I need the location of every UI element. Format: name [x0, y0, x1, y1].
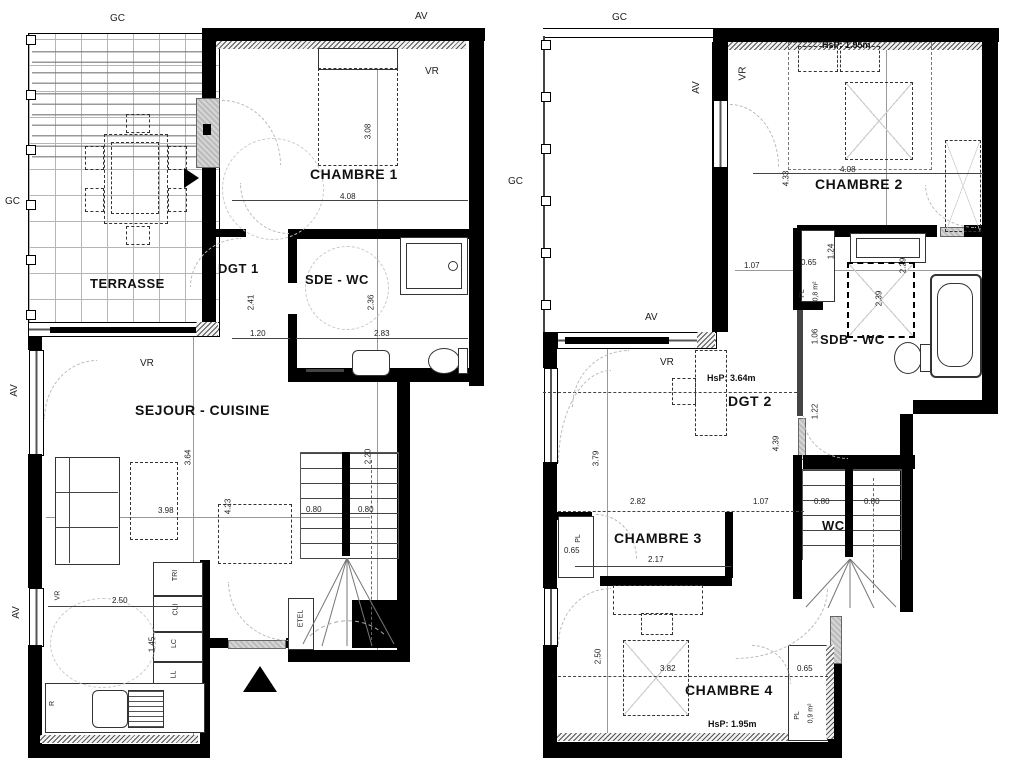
wall [712, 42, 728, 332]
dim-sejour-depth: 4.23 [223, 499, 232, 515]
kitchen-island [130, 462, 178, 540]
sofa-line [69, 457, 70, 563]
wall [793, 455, 802, 599]
dim-sdb-e: 1.06 [810, 329, 819, 345]
dim-stair-height: 2.20 [363, 449, 372, 465]
pl-closet-c4 [788, 645, 828, 741]
dim-stair-right: 0.80 [864, 497, 880, 506]
wall-insulation [40, 735, 198, 743]
railing-post [541, 196, 551, 206]
railing-post [26, 35, 36, 45]
wall [216, 229, 246, 237]
annotation-vr-kitchen: VR [54, 591, 61, 601]
kitchen-label-r: R [49, 701, 56, 706]
wall-insulation [196, 322, 218, 336]
dim-c3-width: 2.82 [630, 497, 646, 506]
room-label-chambre3: CHAMBRE 3 [614, 530, 702, 546]
annotation-av-top: AV [415, 11, 428, 22]
terrace-chair [168, 146, 187, 170]
room-label-wc: WC [822, 518, 845, 533]
hsp-label-c2: HsP: 1.95m [822, 40, 871, 50]
dim-dgt2-height: 4.39 [771, 436, 780, 452]
sofa [55, 457, 120, 565]
annotation-gc-top: GC [612, 12, 627, 23]
dim-sdb-c: 2.39 [874, 291, 883, 307]
dim-stair-left: 0.80 [814, 497, 830, 506]
roller-shutter-box [565, 337, 669, 344]
washbasin-sdb-inner [856, 238, 920, 258]
desk [613, 585, 703, 615]
wall [210, 638, 228, 648]
railing-post [26, 255, 36, 265]
dim-stair-right: 0.80 [358, 505, 374, 514]
sofa-line [55, 527, 118, 528]
shower-drain [448, 261, 458, 271]
door-handle [203, 124, 211, 135]
roller-shutter-box [50, 327, 200, 333]
wardrobe-dgt2 [695, 350, 727, 436]
kitchen-label-cui: CUI [173, 603, 180, 615]
dim-c2-height: 4.33 [781, 171, 790, 187]
void-left-edge [543, 36, 545, 332]
annotation-av-left-lower: AV [11, 606, 22, 619]
dim-c3-b: 1.07 [753, 497, 769, 506]
dim-sdb-f: 1.22 [810, 404, 819, 420]
wall [28, 336, 42, 350]
wall [543, 645, 557, 758]
wall [803, 455, 915, 469]
wall [202, 41, 216, 333]
terrace-chair [126, 114, 150, 133]
dim-sde-height: 2.36 [366, 295, 375, 311]
void-area [543, 28, 719, 38]
annotation-vr-dgt2: VR [660, 357, 674, 368]
annotation-etel: ETEL [297, 610, 304, 628]
railing-post [26, 145, 36, 155]
toilet-tank [458, 348, 468, 374]
annotation-vr-sejour: VR [140, 358, 154, 369]
plan-lower-level: TERRASSE CHAMBRE 1 DGT 1 SDE - WC SEJOUR… [0, 0, 512, 767]
annotation-gc-left: GC [508, 176, 523, 187]
dim-kitchen-width: 2.50 [112, 596, 128, 605]
kitchen-unit-lc [153, 632, 203, 662]
room-label-chambre1: CHAMBRE 1 [310, 166, 398, 182]
annotation-av-dgt2: AV [645, 312, 658, 323]
wall-thin [797, 310, 803, 416]
wall [469, 41, 484, 386]
window [544, 588, 558, 647]
stair-direction-line [371, 460, 372, 640]
dim-c2-width: 4.08 [840, 165, 856, 174]
wall-insulation [697, 332, 715, 348]
dim-line [296, 338, 468, 339]
floorplan-sheet: { "colors": {"ink":"#000000","paper":"#f… [0, 0, 1024, 767]
dim-line [575, 566, 731, 567]
dim-c1-width: 4.08 [340, 192, 356, 201]
dim-sdb-d: 2.29 [898, 258, 907, 274]
wall [543, 742, 842, 758]
kitchen-label-ll: LL [170, 671, 177, 679]
room-label-sejour-cuisine: SEJOUR - CUISINE [135, 402, 270, 418]
railing-post [541, 92, 551, 102]
wall [202, 28, 485, 41]
dim-sejour-width: 3.98 [158, 506, 174, 515]
kitchen-label-lc: LC [171, 639, 178, 648]
pl-label-sdb: PL [799, 289, 806, 298]
railing-post [541, 144, 551, 154]
room-label-sdb-wc: SDB - WC [820, 332, 885, 347]
toilet-bowl [428, 348, 460, 374]
dim-c4-height: 2.50 [593, 649, 602, 665]
toilet-bowl [894, 342, 922, 374]
annotation-vr-void: VR [737, 67, 748, 81]
room-label-chambre4: CHAMBRE 4 [685, 682, 773, 698]
clearance-circle [50, 598, 156, 688]
pl-area-c4: 0,9 m² [807, 704, 814, 724]
railing-post [541, 40, 551, 50]
sink-drainer [128, 690, 164, 728]
railing-post [26, 310, 36, 320]
stair-direction-line [873, 478, 874, 593]
room-label-terrasse: TERRASSE [90, 276, 165, 291]
entrance-arrow [243, 666, 277, 692]
stair-spine-wall [845, 469, 853, 557]
dim-sdb-a: 0.65 [801, 258, 817, 267]
railing-post [541, 248, 551, 258]
dim-stair-left: 0.80 [306, 505, 322, 514]
terrace-chair [85, 188, 104, 212]
railing-post [26, 90, 36, 100]
dim-c3-pl: 0.65 [564, 546, 580, 555]
toilet-tank [920, 344, 931, 372]
room-label-sde-wc: SDE - WC [305, 272, 369, 287]
wall [913, 400, 998, 414]
wall [543, 332, 557, 368]
pl-area-sdb: 0,8 m² [812, 282, 819, 302]
bed-c4 [623, 640, 689, 716]
annotation-gc-left: GC [5, 196, 20, 207]
dim-c4-width: 3.82 [660, 664, 676, 673]
entry-door-leaf [228, 640, 286, 649]
bathtub-inner [937, 283, 973, 367]
annotation-av-left-upper: AV [9, 384, 20, 397]
room-label-dgt1: DGT 1 [218, 261, 259, 276]
bed [318, 68, 398, 166]
annotation-gc-top: GC [110, 13, 125, 24]
wall [288, 239, 297, 283]
terrace-table-inner [111, 142, 159, 214]
wall [725, 512, 733, 578]
dim-line [232, 338, 290, 339]
dim-dgt1-width: 1.20 [250, 329, 266, 338]
pl-label-c3: PL [575, 534, 582, 543]
wall [28, 454, 42, 588]
wall [28, 744, 210, 758]
terrace-chair [168, 188, 187, 212]
section-marker [184, 168, 199, 188]
sofa-line [55, 492, 118, 493]
dim-sejour-height: 3.64 [183, 450, 192, 466]
window [29, 350, 44, 456]
bed-pillow [318, 48, 398, 70]
dim-line-c3 [558, 511, 804, 512]
dim-sde-width: 2.83 [374, 329, 390, 338]
stair-spine-wall [342, 452, 350, 556]
terrace-chair [85, 146, 104, 170]
stair-winder [300, 556, 397, 648]
dim-c4-pl: 0.65 [797, 664, 813, 673]
wall [288, 650, 410, 662]
dim-c3-inner: 2.17 [648, 555, 664, 564]
clearance-circle [222, 138, 324, 240]
dim-dgt2-b: 3.79 [591, 451, 600, 467]
railing-post [541, 300, 551, 310]
hsp-label-c4: HsP: 1.95m [708, 719, 757, 729]
wall [543, 462, 557, 588]
railing-post [26, 200, 36, 210]
dim-c1-height: 3.08 [363, 124, 372, 140]
hsp-label-dgt2: HsP: 3.64m [707, 373, 756, 383]
annotation-vr-chambre1: VR [425, 66, 439, 77]
door-swing-arc [228, 582, 289, 641]
kitchen-label-tri: TRI [172, 570, 179, 581]
clearance-circle [305, 246, 389, 330]
washbasin [352, 350, 390, 376]
window [544, 368, 558, 464]
room-label-chambre2: CHAMBRE 2 [815, 176, 903, 192]
annotation-av-void: AV [691, 81, 702, 94]
dim-sdb-b: 1.24 [826, 244, 835, 260]
wall-insulation [826, 645, 834, 739]
room-label-dgt2: DGT 2 [728, 393, 772, 409]
towel-rail [306, 369, 344, 372]
bed [845, 82, 913, 160]
wall [982, 42, 998, 414]
terrace-chair [126, 226, 150, 245]
window-swing-arc [44, 360, 97, 419]
window [29, 588, 44, 647]
desk-chair [641, 613, 673, 635]
kitchen-sink [92, 690, 128, 728]
window [713, 100, 728, 168]
dim-dgt2-a: 1.07 [744, 261, 760, 270]
dim-kitchen-height: 1.45 [147, 637, 156, 653]
dim-dgt1-height: 2.41 [246, 295, 255, 311]
pl-label-c4: PL [794, 711, 801, 720]
